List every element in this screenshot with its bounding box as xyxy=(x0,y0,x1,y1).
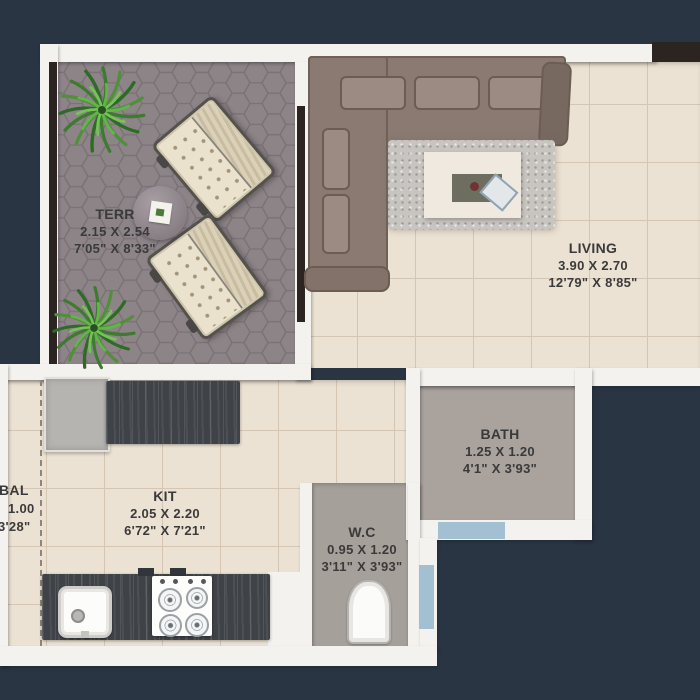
room-dim-ft: 3'11" X 3'93" xyxy=(287,558,437,575)
sofa-cushion xyxy=(322,128,350,190)
room-dim-ft: 6'72" X 7'21" xyxy=(90,522,240,539)
bath-door xyxy=(438,522,505,539)
room-dim-m: 2.05 X 2.20 xyxy=(90,505,240,522)
room-name: KIT xyxy=(90,488,240,505)
wall-bath-right xyxy=(575,368,592,540)
room-label-bath: BATH 1.25 X 1.20 4'1" X 3'93" xyxy=(425,426,575,477)
room-dim-m: 3.90 X 2.70 xyxy=(518,257,668,274)
stove-burner xyxy=(186,587,208,609)
room-label-bal-dim-m: 1.00 xyxy=(8,501,35,516)
toilet xyxy=(347,580,391,644)
room-label-bal-name: BAL xyxy=(0,482,29,498)
room-label-kit: KIT 2.05 X 2.20 6'72" X 7'21" xyxy=(90,488,240,539)
counter-hinge xyxy=(170,568,186,576)
counter-hinge xyxy=(138,568,154,576)
room-name: TERR xyxy=(40,206,190,223)
stove-knob xyxy=(188,579,193,584)
room-name: LIVING xyxy=(518,240,668,257)
stove-burner xyxy=(185,613,209,637)
stove-knob xyxy=(160,579,165,584)
refrigerator xyxy=(44,377,110,452)
wall-counter-end xyxy=(268,572,300,648)
floor-plan: TERR 2.15 X 2.54 7'05" X 8'33" LIVING 3.… xyxy=(0,0,700,700)
room-dim-ft: 12'79" X 8'85" xyxy=(518,274,668,291)
potted-plant-top xyxy=(52,60,152,160)
sofa-armrest-right xyxy=(538,61,572,146)
sliding-door-terrace-living xyxy=(297,106,305,322)
room-dim-m: 1.25 X 1.20 xyxy=(425,443,575,460)
sofa-cushion xyxy=(340,76,406,110)
room-label-bal-dim-ft: 3'28" xyxy=(0,519,30,534)
sofa-cushion xyxy=(322,194,350,254)
stove-burner xyxy=(159,614,182,637)
sink-drain xyxy=(71,609,85,623)
stove-burner xyxy=(158,588,182,612)
room-label-wc: W.C 0.95 X 1.20 3'11" X 3'93" xyxy=(287,524,437,575)
room-label-terr: TERR 2.15 X 2.54 7'05" X 8'33" xyxy=(40,206,190,257)
room-dim-ft: 7'05" X 8'33" xyxy=(40,240,190,257)
sink-faucet xyxy=(81,631,89,638)
potted-plant-bottom xyxy=(46,280,142,376)
wall-living-bottom xyxy=(406,368,700,386)
sofa-bottom-armrest xyxy=(304,266,390,292)
stove-knob xyxy=(201,579,206,584)
wall-balcony-left xyxy=(0,364,8,666)
room-name: W.C xyxy=(287,524,437,541)
room-dim-m: 2.15 X 2.54 xyxy=(40,223,190,240)
kitchen-sink xyxy=(58,586,112,638)
sofa-cushion xyxy=(414,76,480,110)
room-name: BATH xyxy=(425,426,575,443)
gas-stove xyxy=(152,576,212,636)
room-dim-m: 0.95 X 1.20 xyxy=(287,541,437,558)
stove-knob xyxy=(173,579,178,584)
window-top-right xyxy=(652,42,700,62)
decor-item xyxy=(470,182,479,191)
room-label-living: LIVING 3.90 X 2.70 12'79" X 8'85" xyxy=(518,240,668,291)
wall-bottom xyxy=(0,646,437,666)
room-dim-ft: 4'1" X 3'93" xyxy=(425,460,575,477)
coffee-table xyxy=(424,152,521,218)
kitchen-counter-upper xyxy=(106,381,240,444)
